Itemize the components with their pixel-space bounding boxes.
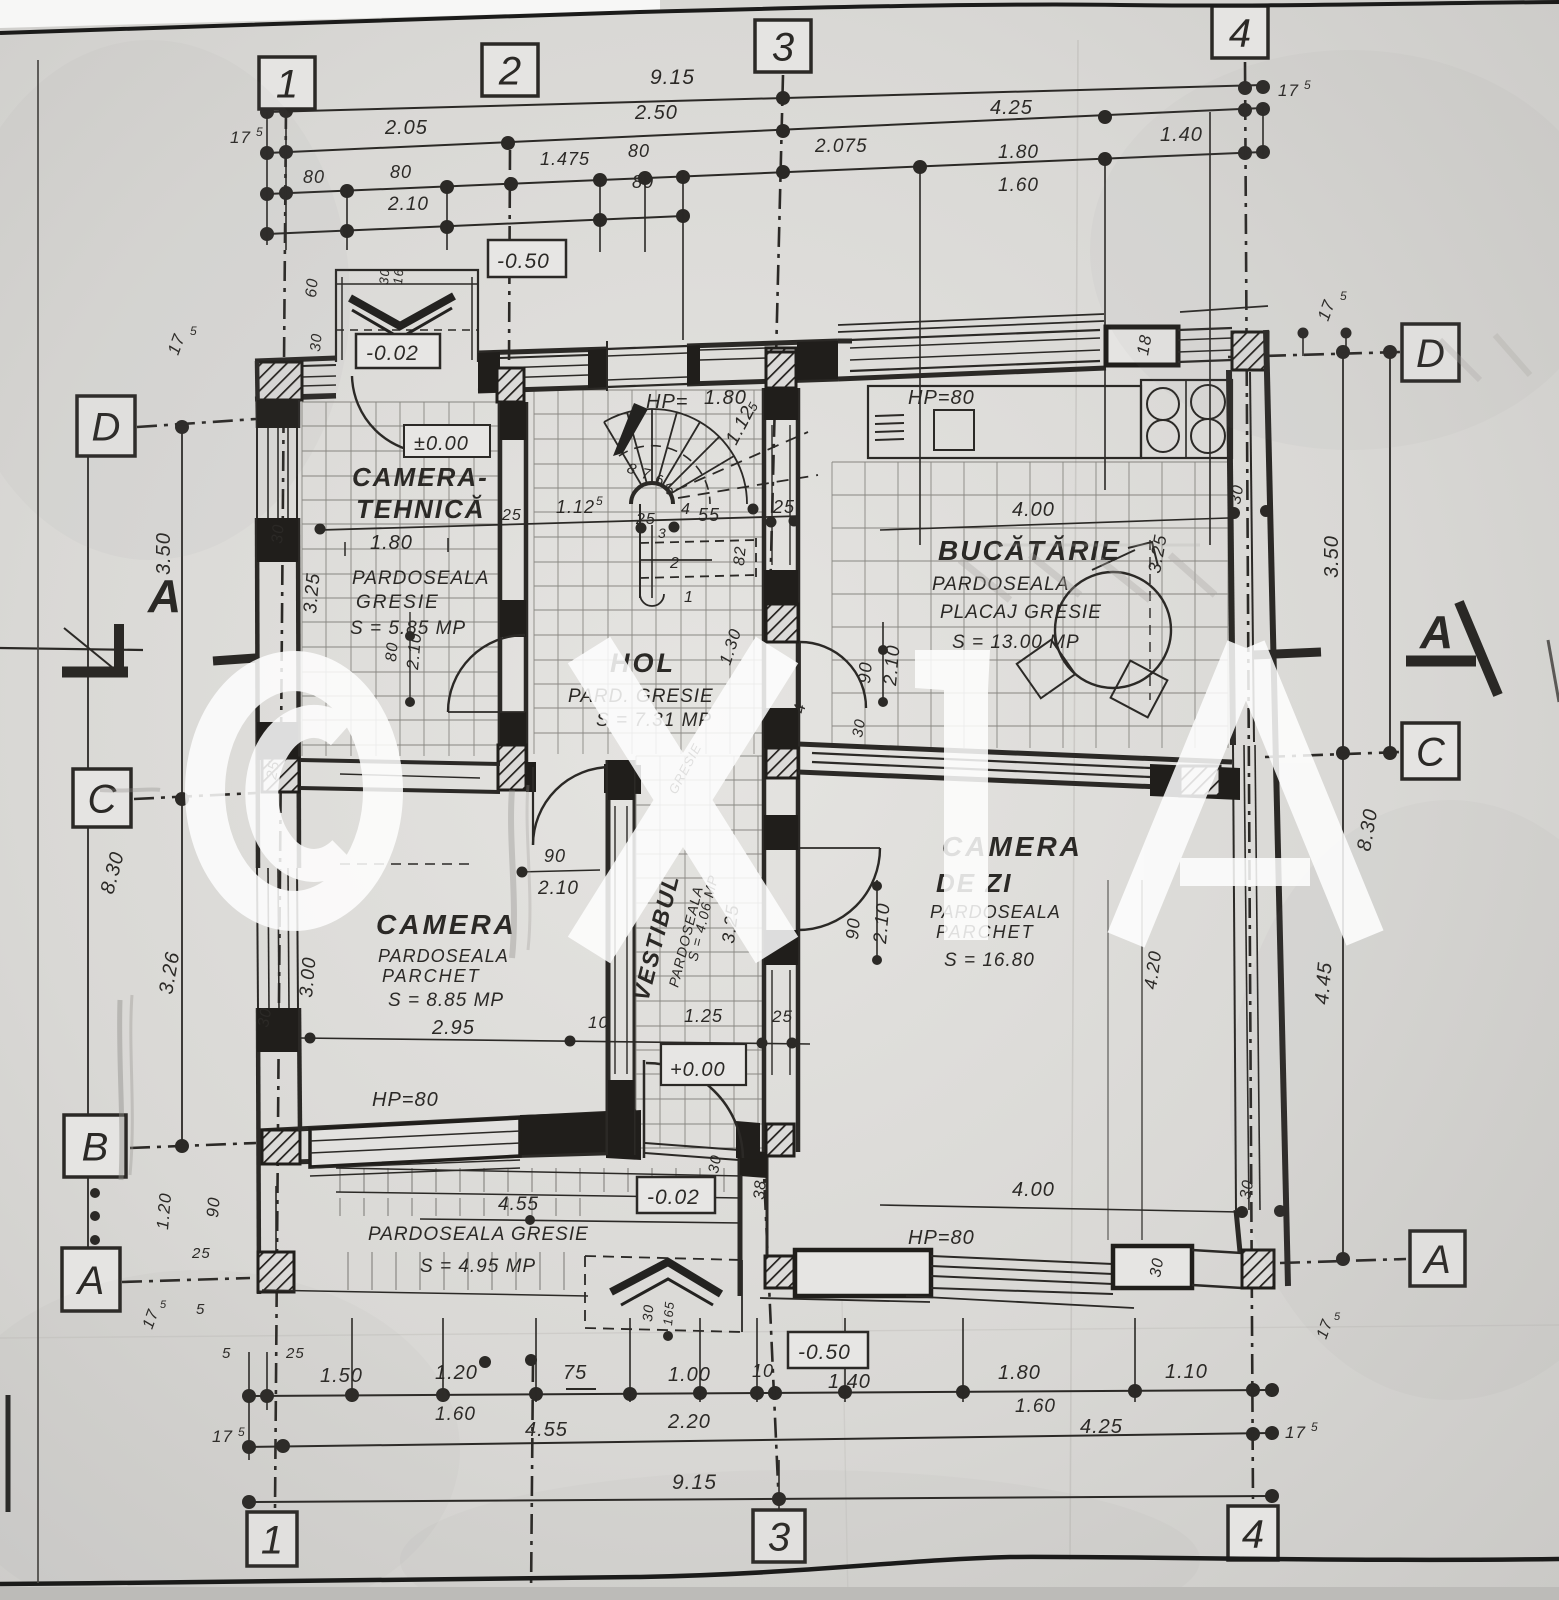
svg-text:GRESIE: GRESIE: [356, 592, 440, 613]
svg-text:1.12: 1.12: [556, 497, 595, 517]
svg-text:80: 80: [383, 641, 402, 662]
svg-text:90: 90: [842, 917, 864, 941]
svg-text:HP=80: HP=80: [908, 1227, 975, 1249]
svg-text:25: 25: [191, 1245, 211, 1262]
svg-text:17: 17: [1285, 1423, 1306, 1442]
svg-text:S = 16.80: S = 16.80: [944, 950, 1035, 971]
svg-text:5: 5: [596, 494, 604, 508]
svg-text:30: 30: [639, 1303, 656, 1322]
svg-text:10: 10: [752, 1361, 774, 1381]
svg-text:1.20: 1.20: [435, 1362, 478, 1384]
svg-text:PARDOSEALA: PARDOSEALA: [378, 946, 509, 966]
svg-text:90: 90: [203, 1196, 224, 1218]
svg-text:4.00: 4.00: [1012, 499, 1055, 521]
svg-text:30: 30: [255, 1006, 275, 1028]
svg-text:C: C: [88, 777, 118, 821]
svg-text:4: 4: [681, 501, 691, 518]
svg-text:CAMERA: CAMERA: [376, 909, 517, 940]
svg-text:3.00: 3.00: [296, 956, 320, 999]
svg-text:6: 6: [655, 472, 664, 489]
svg-text:S = 13.00 MP: S = 13.00 MP: [952, 632, 1080, 653]
svg-text:30: 30: [1227, 483, 1247, 505]
svg-text:CAMERA-: CAMERA-: [352, 462, 489, 492]
svg-text:-0.50: -0.50: [497, 250, 550, 273]
svg-text:165: 165: [660, 1300, 677, 1326]
svg-text:1.20: 1.20: [153, 1192, 175, 1231]
svg-text:3: 3: [658, 525, 667, 541]
svg-text:30: 30: [705, 1153, 725, 1174]
svg-text:4.55: 4.55: [498, 1194, 539, 1215]
svg-text:1: 1: [276, 62, 298, 106]
svg-text:80: 80: [632, 172, 654, 192]
svg-text:PARDOSEALA GRESIE: PARDOSEALA GRESIE: [368, 1224, 589, 1245]
svg-text:2: 2: [498, 49, 521, 93]
svg-text:10: 10: [588, 1013, 609, 1032]
svg-text:1.25: 1.25: [684, 1006, 723, 1026]
svg-text:25: 25: [771, 1007, 793, 1026]
svg-text:2.10: 2.10: [537, 878, 579, 899]
svg-text:HP=80: HP=80: [372, 1089, 439, 1111]
svg-text:25: 25: [772, 497, 795, 517]
svg-text:1: 1: [684, 589, 694, 606]
svg-text:1.80: 1.80: [370, 532, 413, 554]
svg-text:+0.00: +0.00: [670, 1059, 726, 1081]
svg-text:90: 90: [854, 661, 876, 685]
svg-text:-0.02: -0.02: [647, 1186, 700, 1209]
svg-text:9.15: 9.15: [650, 66, 695, 89]
svg-text:30: 30: [269, 523, 288, 544]
svg-text:3: 3: [772, 25, 794, 69]
svg-text:38: 38: [751, 1179, 770, 1200]
svg-text:1.60: 1.60: [1015, 1396, 1056, 1417]
svg-text:4: 4: [1242, 1512, 1264, 1556]
svg-text:2.10: 2.10: [870, 902, 895, 946]
svg-text:S = 4.95 MP: S = 4.95 MP: [420, 1256, 536, 1277]
svg-text:80: 80: [628, 141, 650, 161]
svg-text:2.075: 2.075: [814, 136, 868, 157]
svg-text:2.20: 2.20: [667, 1411, 711, 1433]
svg-text:4: 4: [1229, 11, 1251, 55]
svg-text:PARCHET: PARCHET: [382, 966, 481, 986]
svg-text:2: 2: [669, 555, 680, 572]
svg-text:2.05: 2.05: [384, 117, 428, 139]
svg-text:16: 16: [390, 268, 406, 286]
svg-text:82: 82: [731, 545, 750, 566]
svg-text:1.80: 1.80: [998, 1362, 1041, 1384]
svg-text:55: 55: [698, 505, 720, 525]
svg-text:3.25: 3.25: [300, 572, 324, 615]
svg-text:±0.00: ±0.00: [414, 433, 469, 455]
svg-text:90: 90: [544, 846, 566, 866]
svg-text:A: A: [1419, 606, 1454, 658]
svg-text:1.00: 1.00: [668, 1364, 711, 1386]
svg-text:TEHNICĂ: TEHNICĂ: [356, 494, 486, 524]
svg-text:HP=: HP=: [646, 391, 688, 413]
svg-text:25: 25: [501, 507, 522, 524]
svg-text:A: A: [147, 570, 182, 622]
svg-text:B: B: [82, 1125, 109, 1169]
svg-text:4.00: 4.00: [1012, 1179, 1055, 1201]
svg-text:1.60: 1.60: [998, 175, 1039, 196]
svg-text:1.10: 1.10: [1165, 1361, 1208, 1383]
svg-text:2.95: 2.95: [431, 1017, 475, 1039]
svg-text:4.25: 4.25: [990, 97, 1033, 119]
svg-text:PARDOSEALA: PARDOSEALA: [352, 568, 489, 589]
svg-text:-0.02: -0.02: [366, 342, 419, 365]
svg-text:80: 80: [390, 162, 412, 182]
svg-text:-0.50: -0.50: [798, 1341, 851, 1364]
svg-text:S = 8.85 MP: S = 8.85 MP: [388, 990, 504, 1011]
svg-text:1.80: 1.80: [998, 142, 1039, 163]
svg-text:30: 30: [849, 717, 869, 738]
svg-text:75: 75: [563, 1362, 587, 1384]
svg-text:HP=80: HP=80: [908, 387, 975, 409]
svg-text:30: 30: [1147, 1256, 1167, 1278]
svg-text:2.50: 2.50: [634, 102, 678, 124]
svg-text:PLACAJ GRESIE: PLACAJ GRESIE: [940, 602, 1102, 623]
svg-text:5: 5: [1311, 1420, 1319, 1434]
svg-text:3.50: 3.50: [1321, 535, 1343, 578]
svg-text:1.40: 1.40: [828, 1371, 871, 1393]
svg-text:2.10: 2.10: [387, 194, 429, 215]
svg-text:C: C: [1416, 730, 1446, 774]
svg-text:1.475: 1.475: [540, 149, 590, 169]
